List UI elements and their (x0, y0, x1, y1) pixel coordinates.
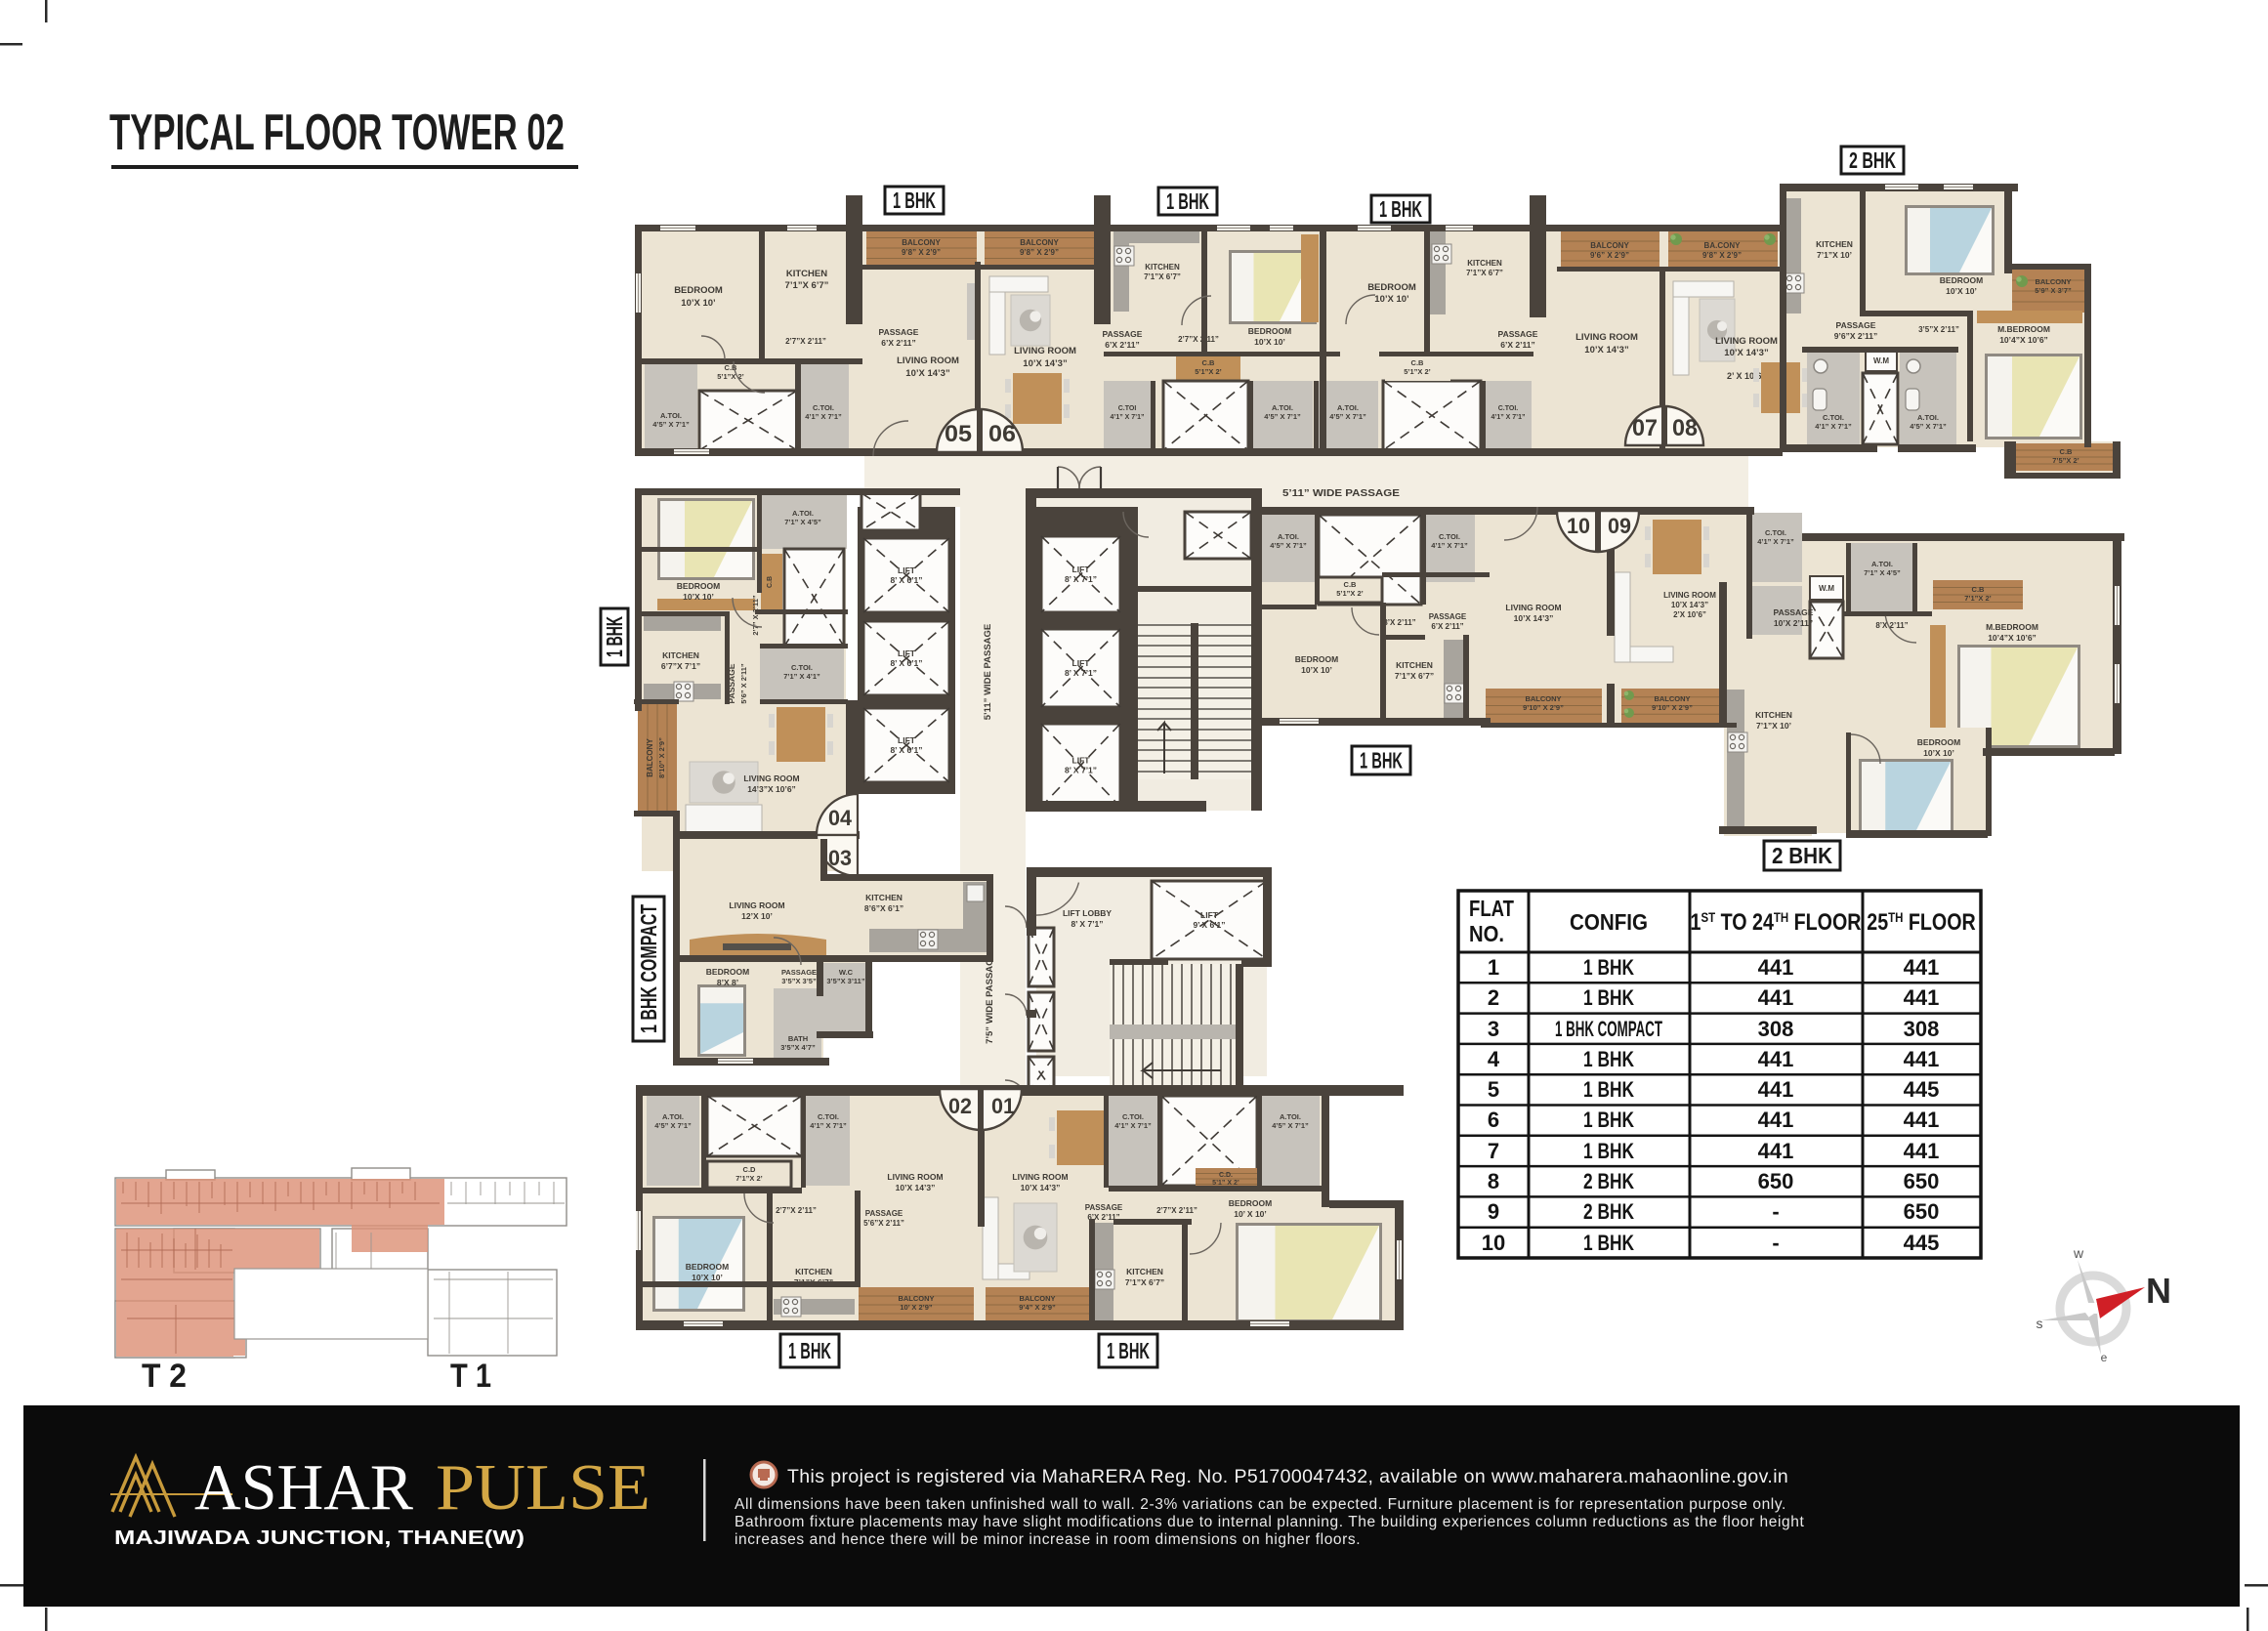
svg-text:KITCHEN8’6”X 6’1”: KITCHEN8’6”X 6’1” (864, 893, 903, 913)
svg-text:2’7”X 2’11”: 2’7”X 2’11” (776, 1206, 817, 1215)
svg-text:308: 308 (1758, 1017, 1794, 1041)
svg-text:BEDROOM10’X 10’: BEDROOM10’X 10’ (1940, 275, 1983, 296)
svg-text:LIVING ROOM10’X 14’3”: LIVING ROOM10’X 14’3” (1505, 603, 1561, 623)
svg-text:W.M: W.M (1819, 584, 1834, 593)
svg-text:441: 441 (1758, 955, 1794, 980)
svg-text:2’7”X 2’11”: 2’7”X 2’11” (1156, 1206, 1197, 1215)
svg-text:2’ X 10’6”: 2’ X 10’6” (1727, 371, 1766, 381)
svg-text:445: 445 (1904, 1231, 1940, 1255)
svg-text:2 BHK: 2 BHK (1583, 1199, 1634, 1224)
svg-text:441: 441 (1904, 1108, 1940, 1132)
svg-text:441: 441 (1758, 1077, 1794, 1102)
svg-text:Bathroom fixture placements ma: Bathroom fixture placements may have sli… (735, 1514, 1804, 1530)
svg-text:KITCHEN7’1”X 6’7”: KITCHEN7’1”X 6’7” (1466, 259, 1503, 277)
svg-text:w: w (2073, 1245, 2084, 1261)
svg-text:1 BHK: 1 BHK (1583, 985, 1634, 1010)
svg-text:e: e (2101, 1351, 2108, 1364)
svg-text:KITCHEN7’1”X 6’7”: KITCHEN7’1”X 6’7” (1144, 263, 1181, 281)
svg-text:650: 650 (1758, 1169, 1794, 1193)
svg-text:PULSE: PULSE (436, 1451, 651, 1524)
svg-text:6: 6 (1488, 1108, 1499, 1132)
svg-text:1 BHK: 1 BHK (1583, 1231, 1634, 1255)
svg-text:2 BHK: 2 BHK (1583, 1169, 1634, 1193)
svg-text:445: 445 (1904, 1077, 1940, 1102)
svg-text:2’7”X 2’11”: 2’7”X 2’11” (1178, 335, 1219, 344)
svg-text:5’11” WIDE PASSAGE: 5’11” WIDE PASSAGE (1282, 488, 1400, 499)
svg-text:9: 9 (1488, 1199, 1499, 1224)
svg-text:7: 7 (1488, 1139, 1499, 1163)
svg-text:2 BHK: 2 BHK (1772, 843, 1832, 868)
svg-text:N: N (2146, 1271, 2171, 1311)
svg-text:8’X 2’11”: 8’X 2’11” (1875, 621, 1908, 630)
svg-text:PASSAGE9’6”X 2’11”: PASSAGE9’6”X 2’11” (1834, 320, 1877, 341)
svg-text:PASSAGE5’6”X 2’11”: PASSAGE5’6”X 2’11” (863, 1209, 904, 1228)
svg-text:BALCONY: BALCONY (646, 738, 654, 777)
svg-text:441: 441 (1758, 985, 1794, 1010)
svg-text:-: - (1772, 1199, 1779, 1224)
svg-text:1 BHK COMPACT: 1 BHK COMPACT (636, 904, 661, 1033)
svg-text:M.BEDROOM10’4”X 10’6”: M.BEDROOM10’4”X 10’6” (1986, 622, 2038, 643)
svg-text:4: 4 (1488, 1047, 1500, 1071)
svg-text:KITCHEN7’1”X 6’7”: KITCHEN7’1”X 6’7” (1125, 1267, 1164, 1287)
svg-text:BEDROOM10’X 10’: BEDROOM10’X 10’ (1248, 326, 1291, 347)
svg-text:2 BHK: 2 BHK (1849, 147, 1896, 173)
svg-text:25TH FLOOR: 25TH FLOOR (1867, 908, 1976, 935)
svg-text:02: 02 (948, 1094, 972, 1118)
svg-text:1 BHK: 1 BHK (893, 188, 936, 213)
svg-text:8’10” X 2’9”: 8’10” X 2’9” (657, 737, 666, 778)
svg-text:441: 441 (1904, 1139, 1940, 1163)
svg-text:PASSAGE6’X 2’11”: PASSAGE6’X 2’11” (1429, 612, 1467, 631)
svg-text:2’7”X 2’11”: 2’7”X 2’11” (785, 337, 826, 346)
svg-text:W.M: W.M (1873, 356, 1889, 365)
svg-text:PASSAGE10’X 2’11”: PASSAGE10’X 2’11” (1774, 607, 1814, 628)
svg-text:PASSAGE3’5”X 3’5”: PASSAGE3’5”X 3’5” (781, 968, 817, 985)
svg-text:06: 06 (988, 421, 1016, 447)
svg-text:01: 01 (991, 1094, 1015, 1118)
svg-text:1: 1 (1488, 955, 1499, 980)
svg-text:This project is registered via: This project is registered via MahaRERA … (787, 1466, 1788, 1487)
svg-text:KITCHEN7’1”X 6’7”: KITCHEN7’1”X 6’7” (1395, 660, 1434, 681)
svg-text:5’11” WIDE PASSAGE: 5’11” WIDE PASSAGE (983, 624, 993, 721)
svg-text:03: 03 (828, 846, 852, 870)
svg-text:441: 441 (1758, 1047, 1794, 1071)
svg-text:BA.CONY9’8” X 2’9”: BA.CONY9’8” X 2’9” (1702, 241, 1742, 260)
svg-text:3’5”X 2’11”: 3’5”X 2’11” (1918, 325, 1959, 334)
svg-text:1 BHK: 1 BHK (1583, 1139, 1634, 1163)
svg-text:08: 08 (1672, 415, 1698, 441)
svg-text:3’X 2’11”: 3’X 2’11” (1383, 618, 1415, 627)
svg-text:5’6” X 2’11”: 5’6” X 2’11” (739, 663, 748, 704)
svg-text:441: 441 (1904, 985, 1940, 1010)
svg-text:1 BHK: 1 BHK (1166, 188, 1209, 214)
svg-text:KITCHEN7’1”X 10’: KITCHEN7’1”X 10’ (1816, 239, 1853, 260)
svg-text:07: 07 (1632, 415, 1658, 441)
svg-text:LIVING ROOM10’X 14’3”: LIVING ROOM10’X 14’3” (1663, 591, 1716, 609)
svg-text:TYPICAL FLOOR TOWER 02: TYPICAL FLOOR TOWER 02 (109, 105, 565, 161)
svg-text:09: 09 (1608, 514, 1631, 538)
svg-text:BALCONY9’8” X 2’9”: BALCONY9’8” X 2’9” (902, 238, 941, 257)
svg-text:CONFIG: CONFIG (1570, 909, 1648, 935)
svg-text:KITCHEN6’7”X 7’1”: KITCHEN6’7”X 7’1” (661, 650, 700, 671)
svg-text:T 1: T 1 (450, 1358, 491, 1395)
svg-text:1 BHK: 1 BHK (788, 1338, 831, 1363)
svg-text:MAJIWADA JUNCTION, THANE(W): MAJIWADA JUNCTION, THANE(W) (114, 1527, 525, 1549)
svg-text:M.BEDROOM10’4”X 10’6”: M.BEDROOM10’4”X 10’6” (1997, 324, 2050, 345)
svg-text:C.B: C.B (767, 576, 774, 588)
svg-text:1 BHK: 1 BHK (602, 616, 627, 657)
svg-text:1 BHK: 1 BHK (1107, 1338, 1150, 1363)
svg-text:BEDROOM10’X 10’: BEDROOM10’X 10’ (686, 1262, 729, 1282)
svg-text:BALCONY9’4” X 2’9”: BALCONY9’4” X 2’9” (1019, 1294, 1056, 1312)
svg-text:441: 441 (1904, 1047, 1940, 1071)
svg-text:1 BHK: 1 BHK (1360, 748, 1403, 774)
svg-text:PASSAGE6’X 2’11”: PASSAGE6’X 2’11” (879, 327, 919, 348)
svg-text:10: 10 (1567, 514, 1590, 538)
svg-text:increases and hence there will: increases and hence there will be minor … (735, 1531, 1361, 1548)
svg-text:BEDROOM10’X 10’: BEDROOM10’X 10’ (1917, 737, 1960, 758)
svg-text:s: s (2037, 1316, 2043, 1331)
svg-text:5: 5 (1488, 1077, 1499, 1102)
svg-text:8: 8 (1488, 1169, 1499, 1193)
svg-text:BEDROOM10’ X 10’: BEDROOM10’ X 10’ (1229, 1198, 1272, 1219)
svg-text:BALCONY9’6” X 2’9”: BALCONY9’6” X 2’9” (1590, 241, 1629, 260)
svg-text:1 BHK COMPACT: 1 BHK COMPACT (1555, 1017, 1662, 1041)
svg-text:BEDROOM10’X 10’: BEDROOM10’X 10’ (677, 581, 720, 602)
svg-text:-: - (1772, 1231, 1779, 1255)
svg-text:7’5” WIDE PASSAGE: 7’5” WIDE PASSAGE (985, 952, 995, 1044)
svg-text:3: 3 (1488, 1017, 1499, 1041)
svg-text:BEDROOM10’X 10’: BEDROOM10’X 10’ (1367, 282, 1416, 305)
svg-text:05: 05 (945, 421, 972, 447)
svg-text:2’X 10’6”: 2’X 10’6” (1673, 610, 1706, 619)
svg-text:650: 650 (1904, 1199, 1940, 1224)
svg-text:1 BHK: 1 BHK (1583, 1108, 1634, 1132)
svg-text:2: 2 (1488, 985, 1499, 1010)
svg-text:BALCONY10’ X 2’9”: BALCONY10’ X 2’9” (898, 1294, 934, 1312)
svg-text:1 BHK: 1 BHK (1583, 1047, 1634, 1071)
svg-text:1 BHK: 1 BHK (1583, 1077, 1634, 1102)
svg-text:All dimensions have been taken: All dimensions have been taken unfinishe… (735, 1496, 1786, 1513)
svg-text:BALCONY9’10” X 2’9”: BALCONY9’10” X 2’9” (1523, 694, 1564, 712)
svg-text:10: 10 (1482, 1231, 1505, 1255)
svg-text:308: 308 (1904, 1017, 1940, 1041)
svg-text:T 2: T 2 (142, 1358, 187, 1395)
svg-text:BALCONY5’9” X 3’7”: BALCONY5’9” X 3’7” (2035, 277, 2072, 295)
svg-text:04: 04 (828, 806, 853, 830)
svg-text:441: 441 (1904, 955, 1940, 980)
svg-text:LIVING ROOM14’3”X 10’6”: LIVING ROOM14’3”X 10’6” (743, 774, 799, 794)
svg-text:KITCHEN7’1”X 10’: KITCHEN7’1”X 10’ (1755, 710, 1792, 731)
svg-text:441: 441 (1758, 1139, 1794, 1163)
svg-text:ASHAR: ASHAR (194, 1451, 413, 1524)
svg-text:BALCONY9’10” X 2’9”: BALCONY9’10” X 2’9” (1652, 694, 1693, 712)
svg-text:BALCONY9’8” X 2’9”: BALCONY9’8” X 2’9” (1020, 238, 1059, 257)
svg-text:LIVING ROOM10’X 14’3”: LIVING ROOM10’X 14’3” (1715, 336, 1778, 358)
svg-text:LIVING ROOM10’X 14’3”: LIVING ROOM10’X 14’3” (1012, 1172, 1068, 1192)
svg-text:KITCHEN7’1”X 6’7”: KITCHEN7’1”X 6’7” (785, 269, 829, 291)
svg-text:441: 441 (1758, 1108, 1794, 1132)
svg-text:2’7” X 2’11”: 2’7” X 2’11” (751, 595, 760, 636)
svg-text:LIVING ROOM10’X 14’3”: LIVING ROOM10’X 14’3” (887, 1172, 943, 1192)
svg-text:650: 650 (1904, 1169, 1940, 1193)
svg-text:BEDROOM10’X 10’: BEDROOM10’X 10’ (1295, 654, 1338, 675)
svg-text:1 BHK: 1 BHK (1379, 196, 1422, 222)
svg-text:PASSAGE6’X 2’11”: PASSAGE6’X 2’11” (1103, 329, 1143, 350)
svg-text:1 BHK: 1 BHK (1583, 955, 1634, 980)
svg-text:PASSAGE6’X 2’11”: PASSAGE6’X 2’11” (1498, 329, 1538, 350)
